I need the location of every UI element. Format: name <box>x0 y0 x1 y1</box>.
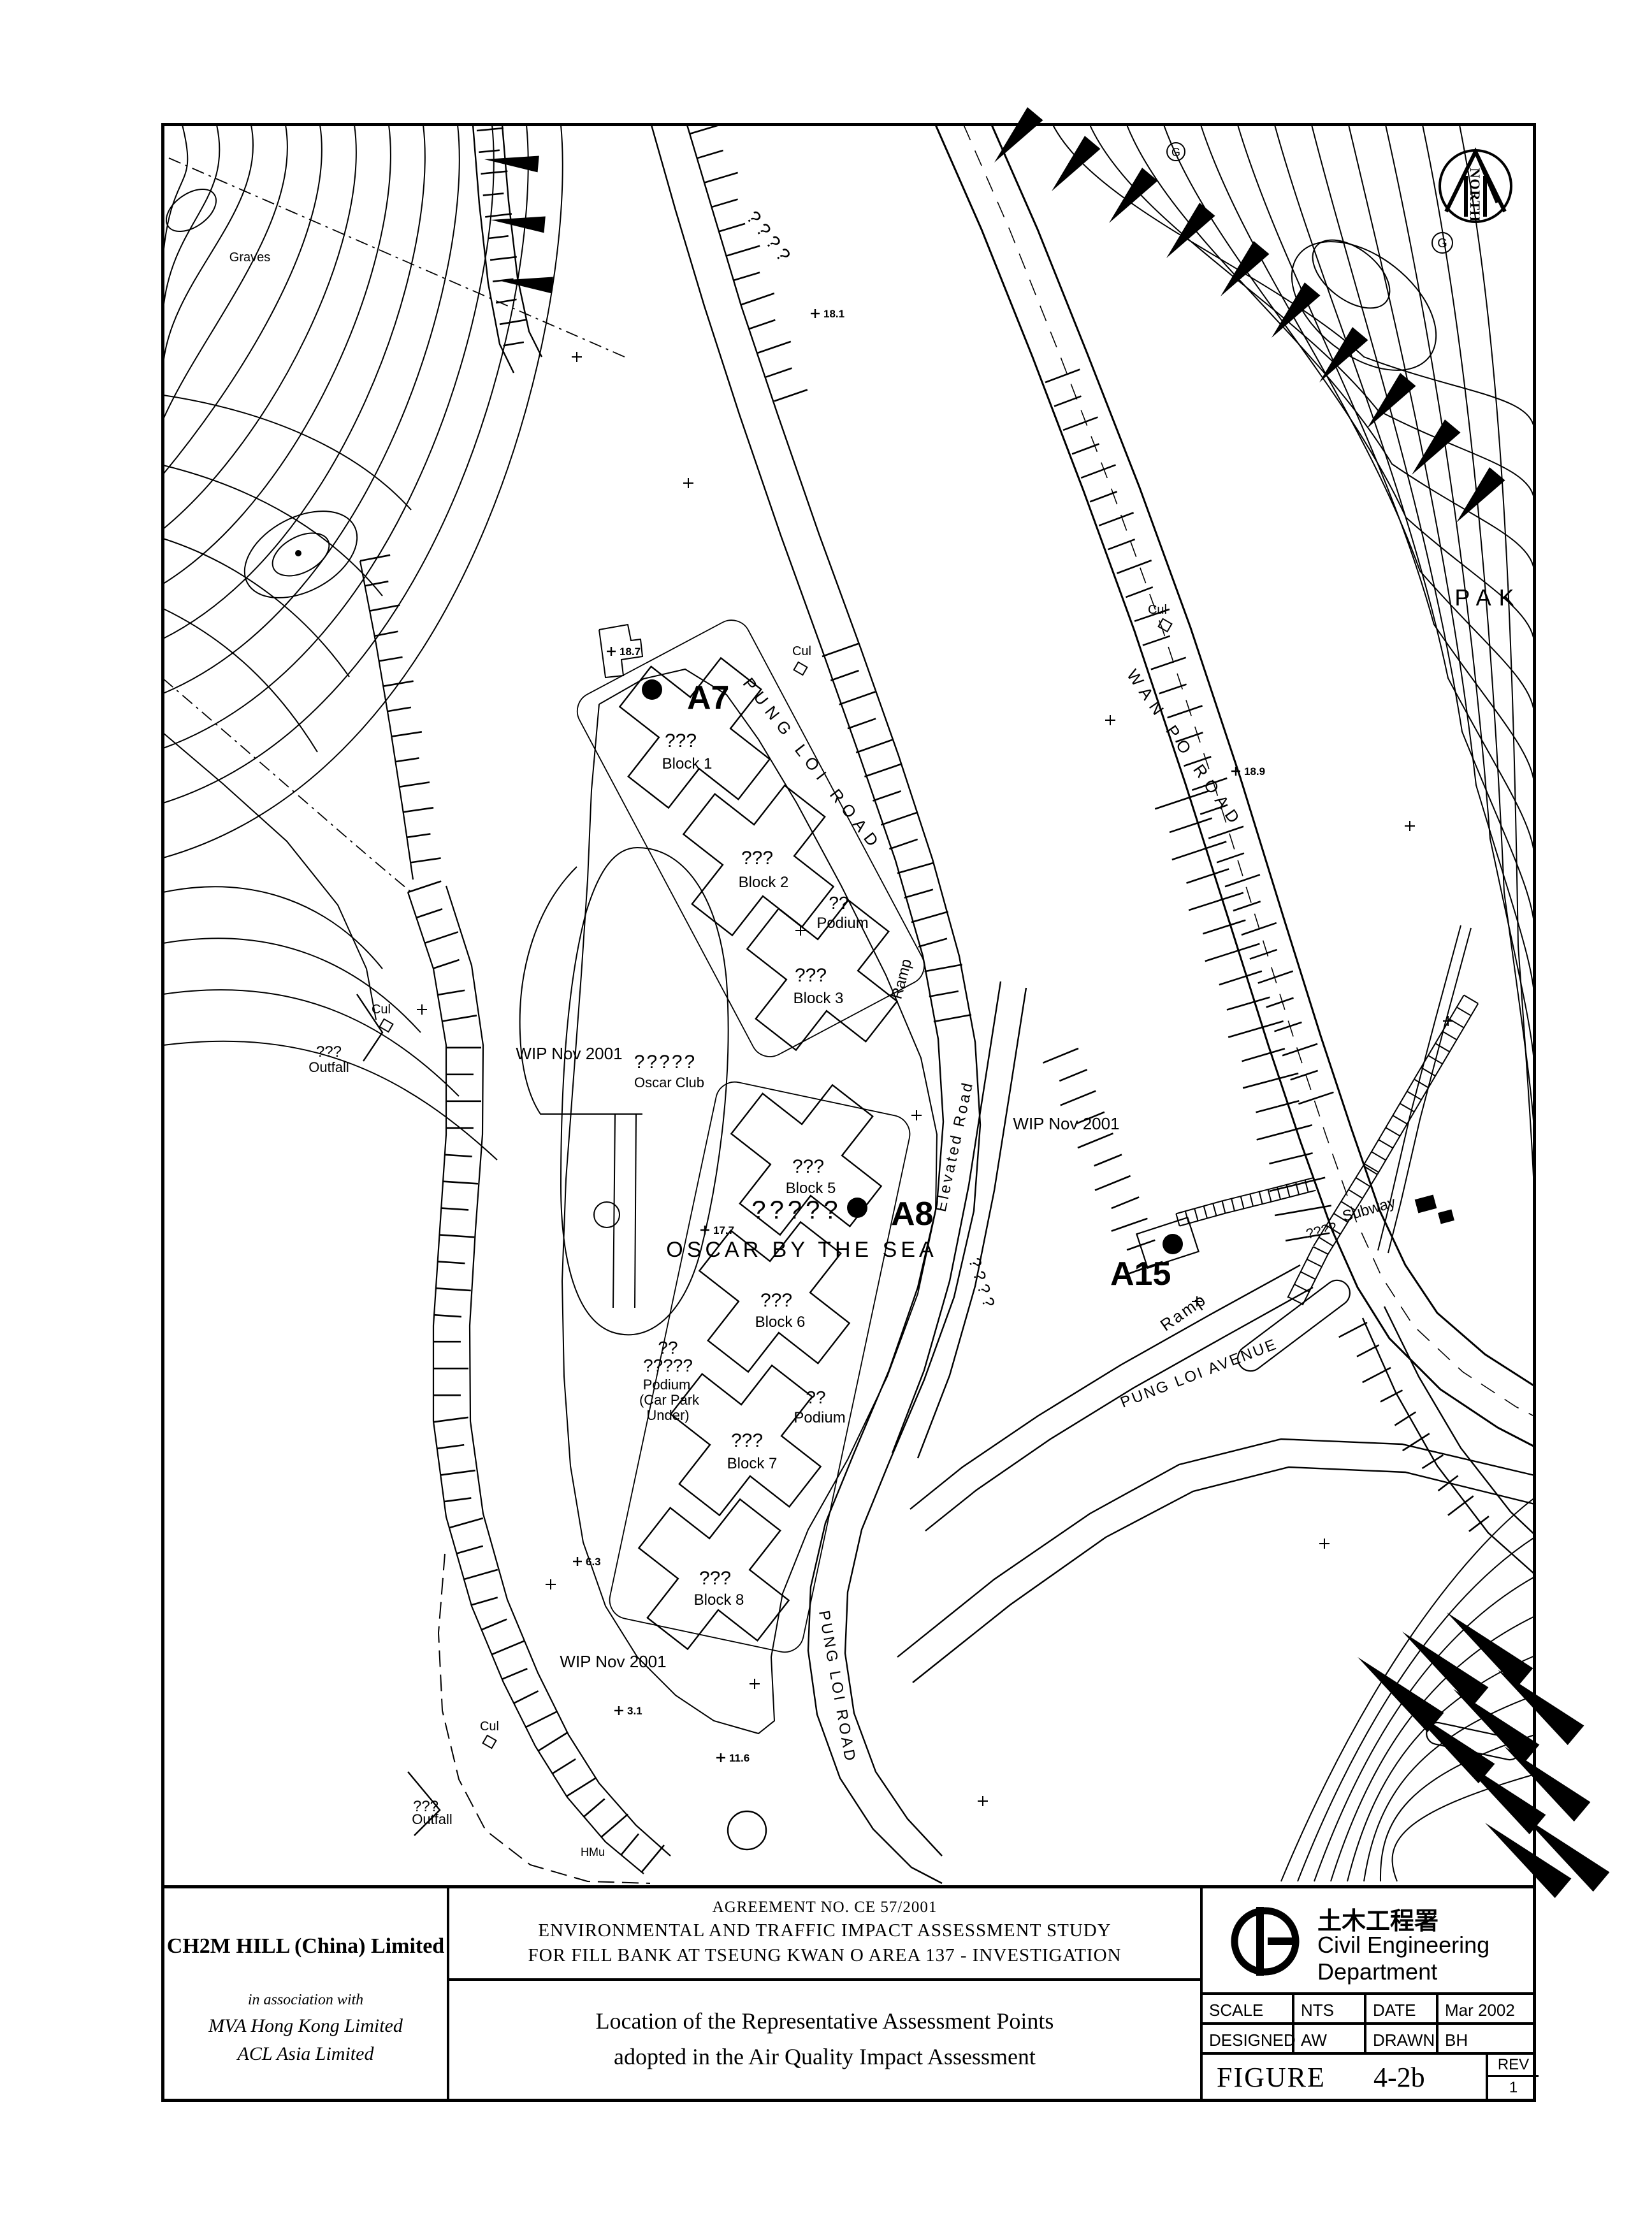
department-zone: 土木工程署 Civil Engineering Department <box>1203 1888 1536 1995</box>
designed-value: AW <box>1294 2025 1366 2052</box>
revision-box: REV 1 <box>1486 2055 1539 2099</box>
study-title-line1: ENVIRONMENTAL AND TRAFFIC IMPACT ASSESSM… <box>449 1920 1200 1941</box>
department-en-line1: Civil Engineering <box>1317 1932 1489 1959</box>
title-block: CH2M HILL (China) Limited in association… <box>161 1885 1536 2102</box>
figure-title: Location of the Representative Assessmen… <box>449 1981 1200 2099</box>
department-name-chinese: 土木工程署 <box>1317 1901 1438 1936</box>
designed-row: DESIGNED AW DRAWN BH <box>1203 2025 1536 2055</box>
association-note: in association with <box>164 1992 447 2009</box>
scale-value: NTS <box>1294 1995 1366 2022</box>
ced-logo-icon <box>1228 1904 1302 1981</box>
drawn-value: BH <box>1438 2025 1539 2052</box>
revision-label: REV <box>1488 2056 1539 2077</box>
drawing-frame <box>161 123 1536 2102</box>
drawn-label: DRAWN <box>1366 2025 1438 2052</box>
partner-1: MVA Hong Kong Limited <box>164 2015 447 2037</box>
scale-label: SCALE <box>1203 1995 1294 2022</box>
date-value: Mar 2002 <box>1438 1995 1539 2022</box>
drawing-page: PUNG LOI ROADPUNG LOI ROADWAN PO ROADEle… <box>0 0 1652 2223</box>
agreement-number: AGREEMENT NO. CE 57/2001 <box>449 1899 1200 1916</box>
designed-label: DESIGNED <box>1203 2025 1294 2052</box>
study-title-line2: FOR FILL BANK AT TSEUNG KWAN O AREA 137 … <box>449 1945 1200 1966</box>
partner-2: ACL Asia Limited <box>164 2043 447 2065</box>
project-panel: AGREEMENT NO. CE 57/2001 ENVIRONMENTAL A… <box>449 1888 1200 2099</box>
figure-number: 4-2b <box>1373 2061 1425 2094</box>
department-panel: 土木工程署 Civil Engineering Department SCALE… <box>1200 1888 1536 2099</box>
revision-value: 1 <box>1488 2079 1539 2097</box>
figure-title-line1: Location of the Representative Assessmen… <box>449 2008 1200 2034</box>
consultant-name: CH2M HILL (China) Limited <box>164 1934 447 1959</box>
scale-row: SCALE NTS DATE Mar 2002 <box>1203 1995 1536 2025</box>
figure-row: FIGURE 4-2b REV 1 <box>1203 2055 1536 2099</box>
department-name-english: Civil Engineering Department <box>1317 1932 1489 1985</box>
figure-title-line2: adopted in the Air Quality Impact Assess… <box>449 2043 1200 2070</box>
consultant-panel: CH2M HILL (China) Limited in association… <box>164 1888 449 2099</box>
project-title: AGREEMENT NO. CE 57/2001 ENVIRONMENTAL A… <box>449 1888 1200 1981</box>
department-en-line2: Department <box>1317 1959 1489 1985</box>
date-label: DATE <box>1366 1995 1438 2022</box>
figure-label: FIGURE <box>1217 2061 1326 2094</box>
